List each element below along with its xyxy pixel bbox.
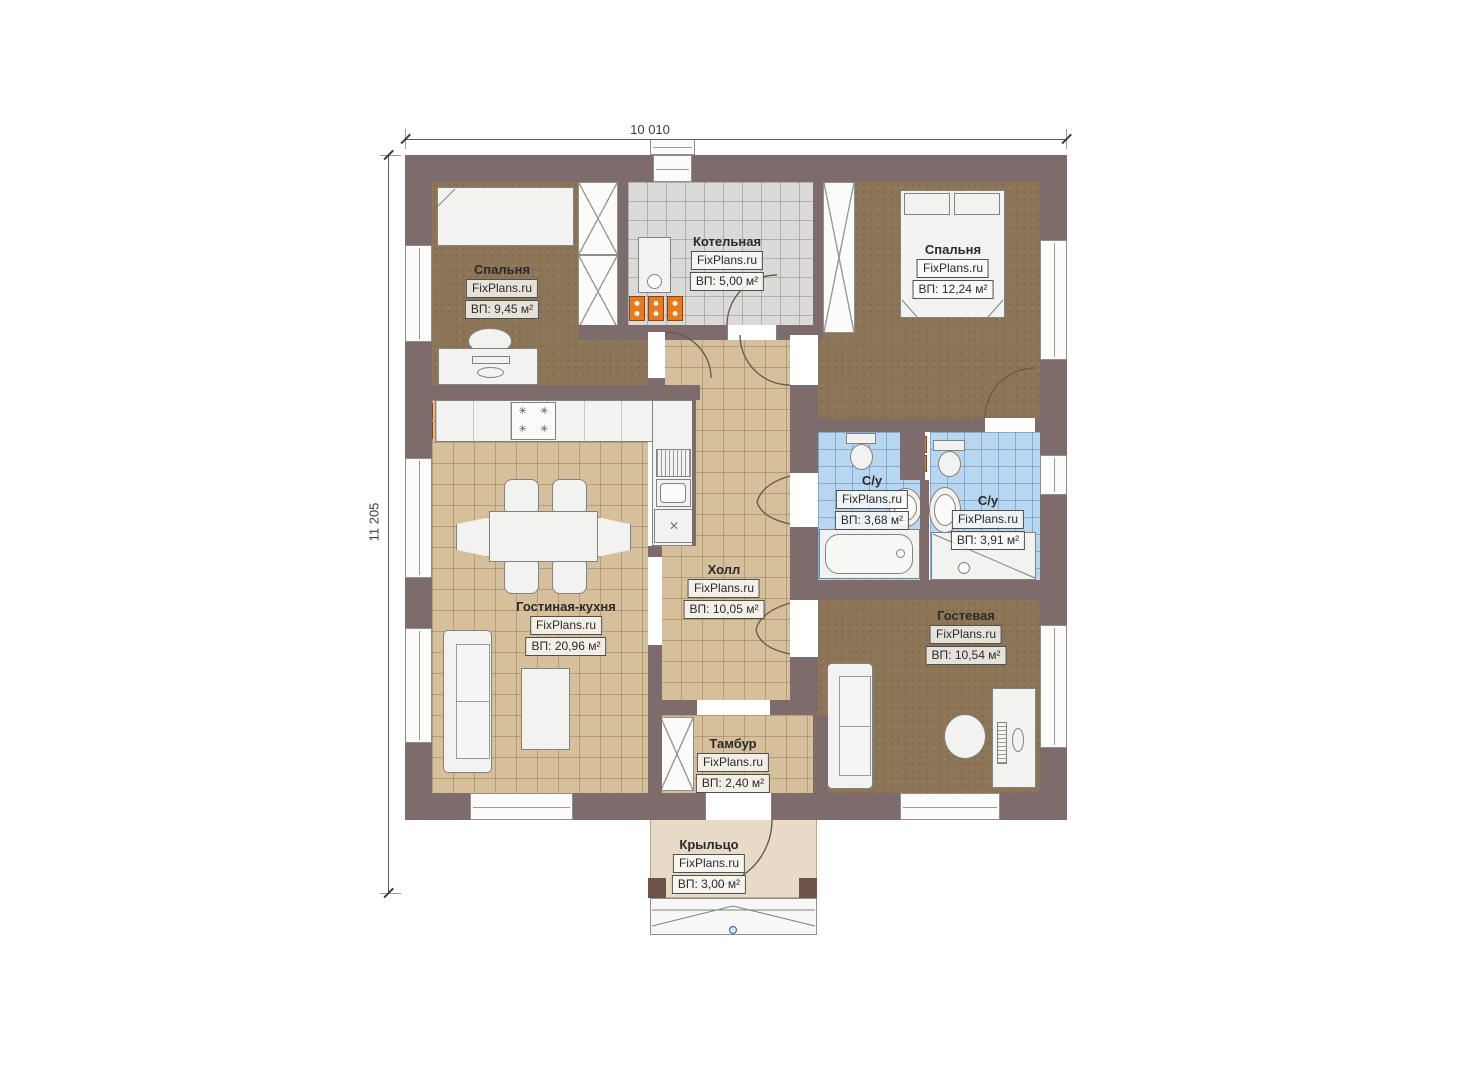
room-area-label: ВП: 3,00 м²	[672, 875, 746, 894]
passage-hall-vestibule	[697, 700, 770, 715]
watermark-label: FixPlans.ru	[673, 854, 745, 873]
room-label-bathroom-1: С/у FixPlans.ru ВП: 3,68 м²	[835, 473, 909, 530]
window-boiler-vent	[653, 155, 692, 182]
stove-burner: ✳	[540, 407, 548, 417]
radiator	[648, 296, 664, 321]
room-area-label: ВП: 9,45 м²	[465, 300, 539, 319]
toilet-bowl	[850, 444, 873, 470]
watermark-label: FixPlans.ru	[530, 616, 602, 635]
room-area-label: ВП: 10,05 м²	[684, 600, 765, 619]
wall-bath-divider-thin	[920, 480, 929, 582]
room-name: Гостевая	[926, 608, 1007, 623]
watermark-label: FixPlans.ru	[930, 625, 1002, 644]
watermark-label: FixPlans.ru	[836, 490, 908, 509]
toilet-bowl	[938, 451, 961, 477]
coffee-table	[521, 668, 570, 750]
wardrobe-bedroom-1-bottom	[578, 255, 618, 328]
guest-desk-monitor	[997, 722, 1007, 764]
desk-mouse	[477, 367, 504, 378]
floor-plan-canvas: ✳ ✳ ✳ ✳ ✕	[0, 0, 1474, 1080]
room-label-guest: Гостевая FixPlans.ru ВП: 10,54 м²	[926, 608, 1007, 665]
room-label-bedroom-1: Спальня FixPlans.ru ВП: 9,45 м²	[465, 262, 539, 319]
window-living-south	[470, 793, 573, 820]
room-area-label: ВП: 3,91 м²	[951, 531, 1025, 550]
shower-head-icon	[958, 562, 970, 574]
door-opening-ensuite	[985, 418, 1035, 432]
porch-post-right	[799, 878, 817, 898]
window-bathroom-2	[1040, 455, 1067, 495]
door-opening-guest	[790, 600, 818, 657]
window-guest-south	[900, 793, 1000, 820]
room-label-bathroom-2: С/у FixPlans.ru ВП: 3,91 м²	[951, 493, 1025, 550]
kitchen-sink-basin	[660, 483, 686, 503]
passage-living-hall	[648, 557, 662, 645]
toilet-tank	[933, 440, 965, 451]
room-name: С/у	[951, 493, 1025, 508]
boiler-chimney	[650, 139, 695, 155]
desk-monitor	[472, 356, 510, 364]
room-name: Холл	[684, 562, 765, 577]
room-name: Котельная	[690, 234, 764, 249]
guest-desk-mouse	[1012, 728, 1024, 752]
wall-hall-west-mid	[648, 546, 662, 557]
window-living-2	[405, 628, 432, 743]
door-opening-boiler	[727, 325, 777, 340]
wardrobe-bedroom-2	[823, 182, 855, 333]
room-area-label: ВП: 2,40 м²	[696, 774, 770, 793]
room-label-living-kitchen: Гостиная-кухня FixPlans.ru ВП: 20,96 м²	[516, 599, 616, 656]
porch-steps	[650, 898, 817, 935]
dishwasher-x-icon: ✕	[669, 519, 679, 533]
door-opening-bathroom-1	[790, 473, 818, 527]
porch-post-left	[648, 878, 666, 898]
wall-kitchen-column-back	[692, 400, 696, 546]
room-label-boiler: Котельная FixPlans.ru ВП: 5,00 м²	[690, 234, 764, 291]
room-area-label: ВП: 5,00 м²	[690, 272, 764, 291]
dining-chair	[504, 479, 539, 512]
room-name: Крыльцо	[672, 837, 746, 852]
window-bedroom-1	[405, 245, 432, 342]
dining-chair	[552, 561, 587, 594]
room-name: С/у	[835, 473, 909, 488]
wall-vestibule-east	[813, 715, 828, 793]
room-name: Гостиная-кухня	[516, 599, 616, 614]
dim-height-label: 11 205	[367, 499, 382, 546]
door-opening-porch	[705, 793, 772, 820]
guest-sofa-divider	[840, 726, 870, 727]
window-guest-east	[1040, 625, 1067, 748]
wall-guest-north	[790, 580, 1040, 600]
wall-boiler-south	[578, 325, 823, 340]
room-label-vestibule: Тамбур FixPlans.ru ВП: 2,40 м²	[696, 736, 770, 793]
dining-chair	[552, 479, 587, 512]
stove-burner: ✳	[519, 407, 527, 417]
room-name: Тамбур	[696, 736, 770, 751]
stove-burner: ✳	[540, 425, 548, 435]
room-area-label: ВП: 12,24 м²	[913, 280, 994, 299]
dim-line-width	[405, 139, 1067, 140]
watermark-label: FixPlans.ru	[691, 251, 763, 270]
room-label-hall: Холл FixPlans.ru ВП: 10,05 м²	[684, 562, 765, 619]
wall-boiler-east	[813, 182, 823, 325]
dishwasher: ✕	[654, 509, 694, 543]
bed-pillow-right	[954, 193, 1000, 215]
dim-line-height	[388, 155, 389, 893]
watermark-label: FixPlans.ru	[917, 259, 989, 278]
stove: ✳ ✳ ✳ ✳	[511, 402, 556, 440]
wall-hall-west-lower	[648, 645, 662, 793]
wardrobe-vestibule	[660, 717, 694, 791]
bed-pillow-left	[904, 193, 950, 215]
stove-burner: ✳	[519, 425, 527, 435]
wardrobe-bedroom-1-top	[578, 182, 618, 255]
dim-width-label: 10 010	[626, 122, 674, 137]
fridge	[656, 449, 691, 477]
guest-chair	[944, 714, 986, 759]
room-label-porch: Крыльцо FixPlans.ru ВП: 3,00 м²	[672, 837, 746, 894]
door-opening-bedroom-1	[648, 332, 665, 378]
room-name: Спальня	[913, 242, 994, 257]
bathtub-drain	[896, 549, 905, 558]
door-opening-bedroom-2	[790, 335, 818, 385]
watermark-label: FixPlans.ru	[952, 510, 1024, 529]
toilet-tank	[846, 433, 876, 444]
room-area-label: ВП: 3,68 м²	[835, 511, 909, 530]
sofa-seat-divider	[457, 701, 489, 702]
wall-exterior-top	[405, 155, 1067, 182]
bed-single	[437, 187, 574, 246]
radiator	[667, 296, 683, 321]
window-bedroom-2	[1040, 240, 1067, 360]
dim-extension-left-bottom	[380, 893, 401, 894]
wall-wardrobe-boiler	[618, 182, 628, 325]
radiator	[629, 296, 645, 321]
room-label-bedroom-2: Спальня FixPlans.ru ВП: 12,24 м²	[913, 242, 994, 299]
dim-extension-left-top	[380, 155, 401, 156]
dining-table	[489, 511, 598, 562]
room-area-label: ВП: 20,96 м²	[526, 637, 607, 656]
window-living-1	[405, 458, 432, 578]
watermark-label: FixPlans.ru	[697, 753, 769, 772]
boiler-gauge	[647, 274, 662, 289]
watermark-label: FixPlans.ru	[688, 579, 760, 598]
room-area-label: ВП: 10,54 м²	[926, 646, 1007, 665]
watermark-label: FixPlans.ru	[466, 279, 538, 298]
dining-chair	[504, 561, 539, 594]
room-name: Спальня	[465, 262, 539, 277]
